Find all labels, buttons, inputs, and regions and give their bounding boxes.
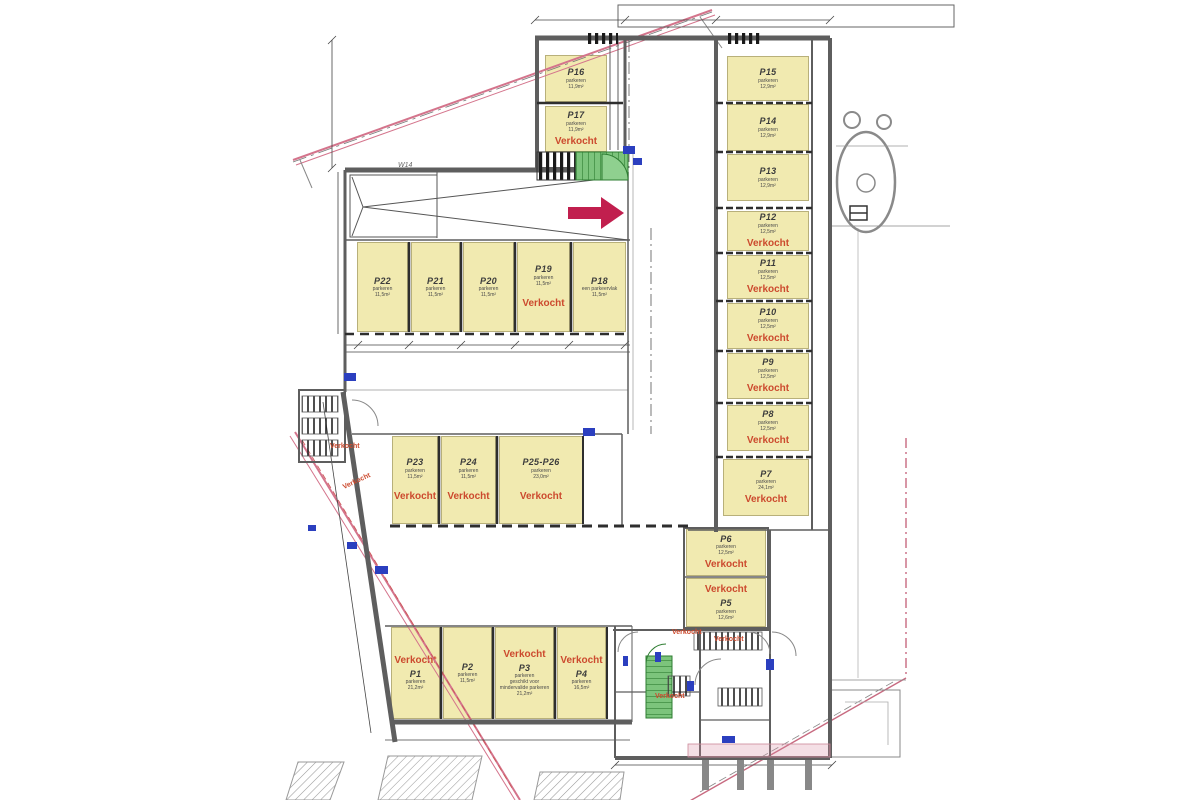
sold-label: Verkocht — [747, 435, 789, 447]
sold-label: Verkocht — [520, 491, 562, 503]
space-label: P9 — [762, 357, 774, 367]
parking-space-P8: P8parkeren12,5m²Verkocht — [727, 405, 809, 451]
space-area: 16,5m² — [574, 685, 590, 691]
space-label: P10 — [760, 307, 777, 317]
space-label: P6 — [720, 534, 732, 544]
parking-space-P11: P11parkeren12,5m²Verkocht — [727, 255, 809, 299]
space-label: P16 — [568, 67, 585, 77]
sold-label: Verkocht — [747, 284, 789, 296]
space-area: 11,5m² — [481, 292, 496, 298]
parking-space-P14: P14parkeren12,9m² — [727, 104, 809, 151]
space-area: 24,1m² — [758, 485, 774, 491]
sold-label: Verkocht — [447, 491, 489, 503]
space-area: 12,9m² — [760, 133, 776, 139]
space-area: 11,9m² — [568, 84, 583, 90]
space-note: geschikt voor mindervalide parkeren — [497, 679, 551, 691]
parking-space-P18: P18een parkeervlak11,5m² — [573, 242, 626, 332]
space-area: 11,5m² — [375, 292, 390, 298]
sold-label: Verkocht — [747, 383, 789, 395]
parking-space-P5: VerkochtP5parkeren12,6m² — [686, 578, 766, 627]
sold-label: Verkocht — [560, 655, 602, 667]
parking-space-P1: VerkochtP1parkeren21,2m² — [391, 627, 440, 719]
space-area: 11,5m² — [407, 474, 422, 480]
parking-space-P25-P26: P25-P26parkeren23,0m²Verkocht — [499, 436, 583, 524]
parking-space-P16: P16parkeren11,9m² — [545, 55, 607, 102]
parking-space-P24: P24parkeren11,5m²Verkocht — [441, 436, 496, 524]
space-area: 12,9m² — [760, 84, 776, 90]
parking-space-P22: P22parkeren11,5m² — [357, 242, 408, 332]
space-area: 12,9m² — [760, 183, 776, 189]
sold-label: Verkocht — [747, 333, 789, 345]
parking-space-P4: VerkochtP4parkeren16,5m² — [557, 627, 606, 719]
space-label: P2 — [462, 662, 474, 672]
space-area: 11,5m² — [428, 292, 443, 298]
parking-space-P6: P6parkeren12,5m²Verkocht — [686, 529, 766, 576]
parking-spaces-layer: P16parkeren11,9m²P17parkeren11,9m²Verkoc… — [0, 0, 1200, 800]
sold-label: Verkocht — [745, 494, 787, 506]
sold-label: Verkocht — [503, 649, 545, 661]
space-area: 12,5m² — [760, 275, 776, 281]
space-label: P14 — [760, 116, 777, 126]
space-area: 12,5m² — [760, 374, 776, 380]
space-label: P17 — [568, 110, 585, 120]
space-label: P1 — [410, 669, 422, 679]
space-area: 12,6m² — [718, 615, 734, 621]
parking-space-P15: P15parkeren12,9m² — [727, 56, 809, 101]
sold-label: Verkocht — [705, 559, 747, 571]
space-label: P20 — [480, 276, 497, 286]
space-area: 11,9m² — [568, 127, 583, 133]
space-label: P5 — [720, 598, 732, 608]
parking-space-P12: P12parkeren12,5m²Verkocht — [727, 211, 809, 251]
parking-space-P3: VerkochtP3parkerengeschikt voor minderva… — [495, 627, 554, 719]
parking-space-P7: P7parkeren24,1m²Verkocht — [723, 459, 809, 516]
space-area: 11,5m² — [460, 678, 475, 684]
space-label: P3 — [519, 663, 531, 673]
space-area: 11,5m² — [461, 474, 476, 480]
space-area: 12,5m² — [760, 426, 776, 432]
sold-label: Verkocht — [394, 491, 436, 503]
space-label: P15 — [760, 67, 777, 77]
parking-space-P2: P2parkeren11,5m² — [443, 627, 492, 719]
space-label: P13 — [760, 166, 777, 176]
sold-label: Verkocht — [522, 298, 564, 310]
sold-label: Verkocht — [747, 238, 789, 250]
floorplan-canvas: P16parkeren11,9m²P17parkeren11,9m²Verkoc… — [0, 0, 1200, 800]
space-label: P24 — [460, 457, 477, 467]
space-label: P23 — [407, 457, 424, 467]
space-label: P8 — [762, 409, 774, 419]
space-area: 21,2m² — [408, 685, 424, 691]
parking-space-P21: P21parkeren11,5m² — [411, 242, 460, 332]
space-area: 12,5m² — [760, 324, 776, 330]
sold-label: Verkocht — [705, 584, 747, 596]
space-label: P4 — [576, 669, 588, 679]
parking-space-P13: P13parkeren12,9m² — [727, 154, 809, 201]
space-label: P22 — [374, 276, 391, 286]
space-label: P18 — [591, 276, 608, 286]
parking-space-P20: P20parkeren11,5m² — [463, 242, 514, 332]
sold-label: Verkocht — [555, 136, 597, 148]
parking-space-P23: P23parkeren11,5m²Verkocht — [392, 436, 438, 524]
space-area: 21,2m² — [517, 691, 533, 697]
space-label: P21 — [427, 276, 444, 286]
space-area: 23,0m² — [533, 474, 549, 480]
parking-space-P9: P9parkeren12,5m²Verkocht — [727, 353, 809, 399]
parking-space-P10: P10parkeren12,5m²Verkocht — [727, 303, 809, 349]
space-label: P7 — [760, 469, 772, 479]
space-label: P19 — [535, 264, 552, 274]
space-label: P11 — [760, 258, 776, 268]
space-label: P25-P26 — [522, 457, 559, 467]
space-area: 12,5m² — [718, 550, 734, 556]
parking-space-P19: P19parkeren11,5m²Verkocht — [517, 242, 570, 332]
space-label: P12 — [760, 212, 777, 222]
sold-label: Verkocht — [394, 655, 436, 667]
space-area: 12,5m² — [760, 229, 776, 235]
space-area: 11,5m² — [536, 281, 551, 287]
parking-space-P17: P17parkeren11,9m²Verkocht — [545, 106, 607, 152]
space-area: 11,5m² — [592, 292, 607, 298]
